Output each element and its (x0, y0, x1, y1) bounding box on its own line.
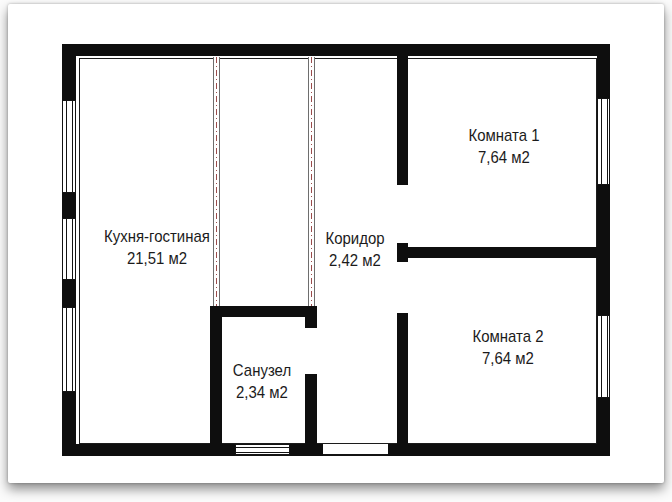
window-room2 (597, 315, 610, 398)
entry-door-opening (323, 444, 388, 456)
room-label-kitchen: Кухня-гостиная 21,51 м2 (91, 226, 223, 270)
window-room1 (597, 98, 610, 185)
room-area: 21,51 м2 (91, 248, 223, 270)
room-name: Комната 1 (442, 125, 565, 147)
window-glass-icon (601, 99, 608, 184)
room-name: Санузел (218, 360, 306, 382)
wall-bathroom-right-lower (305, 374, 317, 444)
room-area: 2,34 м2 (218, 382, 306, 404)
room-name: Комната 2 (446, 326, 569, 348)
room-area: 7,64 м2 (446, 348, 569, 370)
wall-bathroom-top (210, 306, 317, 317)
room-name: Коридор (320, 228, 390, 250)
wall-bathroom-right-upper (305, 306, 317, 328)
window-left-2 (62, 218, 76, 280)
room-name: Кухня-гостиная (91, 226, 223, 248)
window-glass-icon (66, 101, 73, 192)
window-bathroom (235, 444, 290, 456)
room-label-room1: Комната 1 7,64 м2 (442, 125, 565, 169)
room-label-bathroom: Санузел 2,34 м2 (218, 360, 306, 404)
window-glass-icon (236, 447, 289, 453)
window-glass-icon (66, 308, 73, 391)
room-label-room2: Комната 2 7,64 м2 (446, 326, 569, 370)
wall-top (62, 44, 610, 56)
window-glass-icon (66, 219, 73, 279)
wall-corridor-upper (397, 56, 408, 185)
wall-corridor-lower (397, 313, 408, 444)
window-glass-icon (601, 316, 608, 397)
partition-dashed-line-right (308, 57, 315, 306)
room-area: 7,64 м2 (442, 147, 565, 169)
wall-rooms-divider (402, 247, 597, 258)
room-label-corridor: Коридор 2,42 м2 (320, 228, 390, 272)
bathroom-door-opening (305, 328, 317, 374)
floor-plan-image: Кухня-гостиная 21,51 м2 Коридор 2,42 м2 … (0, 0, 672, 502)
window-left-3 (62, 307, 76, 392)
floor-plan: Кухня-гостиная 21,51 м2 Коридор 2,42 м2 … (0, 0, 672, 502)
room-area: 2,42 м2 (320, 250, 390, 272)
window-left-1 (62, 100, 76, 193)
